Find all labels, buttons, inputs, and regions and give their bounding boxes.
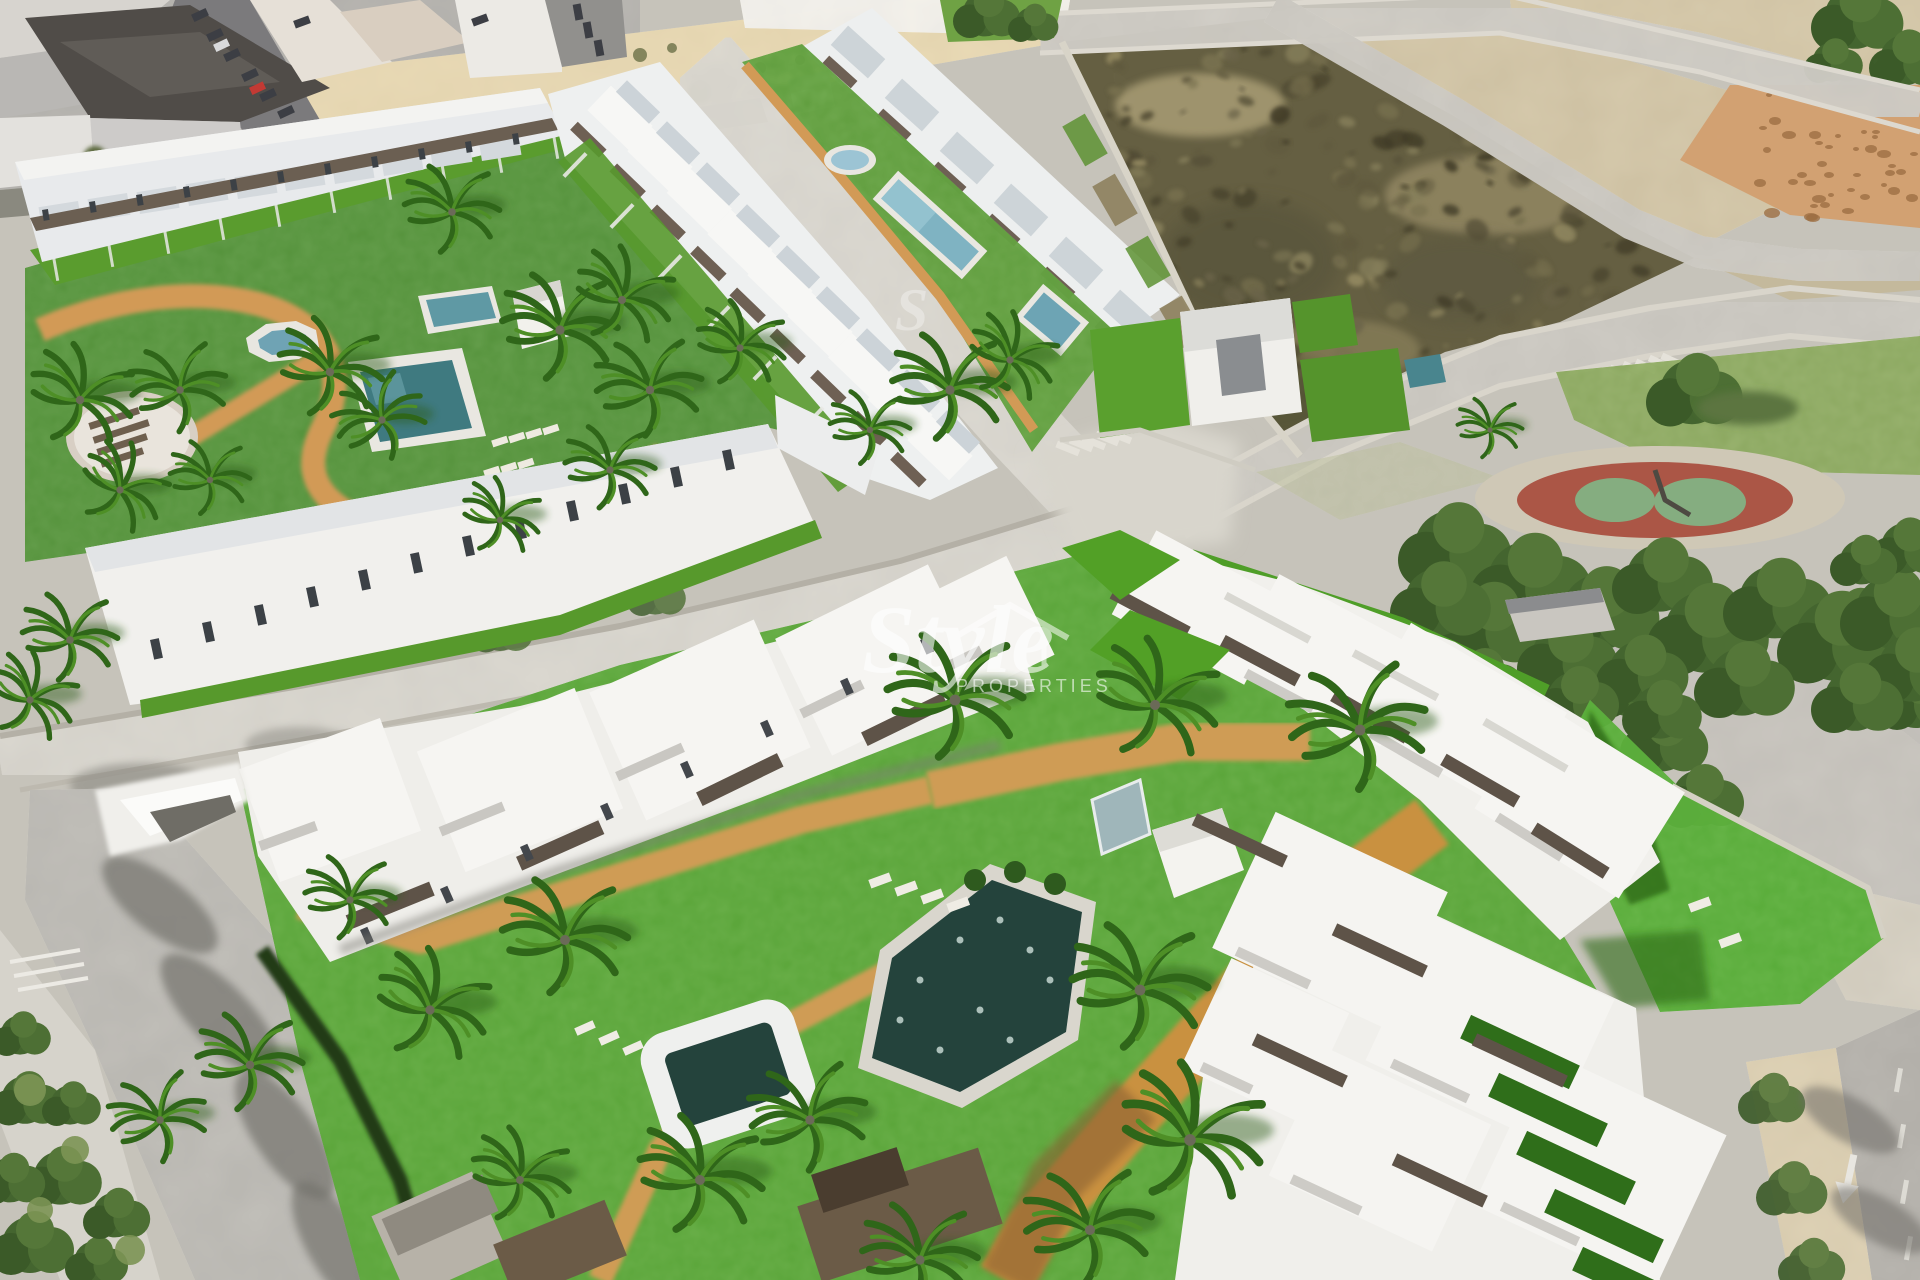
- svg-text:S: S: [895, 277, 928, 343]
- svg-text:PROPERTIES: PROPERTIES: [956, 676, 1112, 696]
